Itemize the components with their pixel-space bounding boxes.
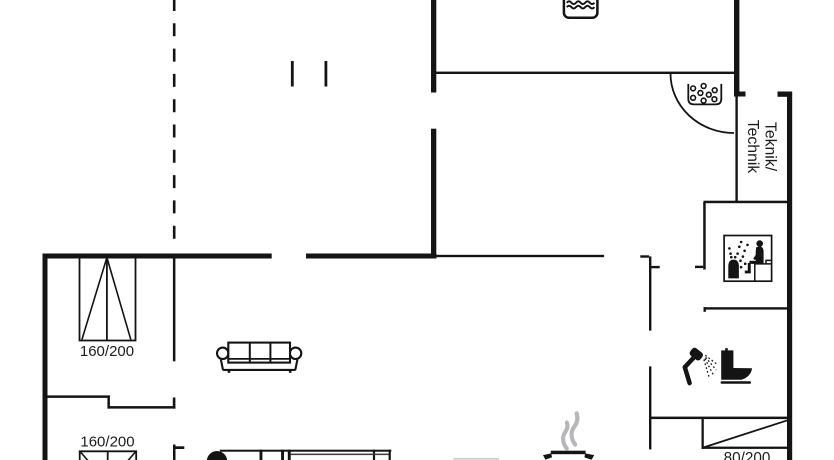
svg-text:Teknik/Technik: Teknik/Technik	[744, 120, 779, 174]
svg-text:80/200: 80/200	[724, 450, 771, 460]
svg-text:160/200: 160/200	[80, 343, 134, 360]
svg-text:160/200: 160/200	[80, 433, 134, 450]
